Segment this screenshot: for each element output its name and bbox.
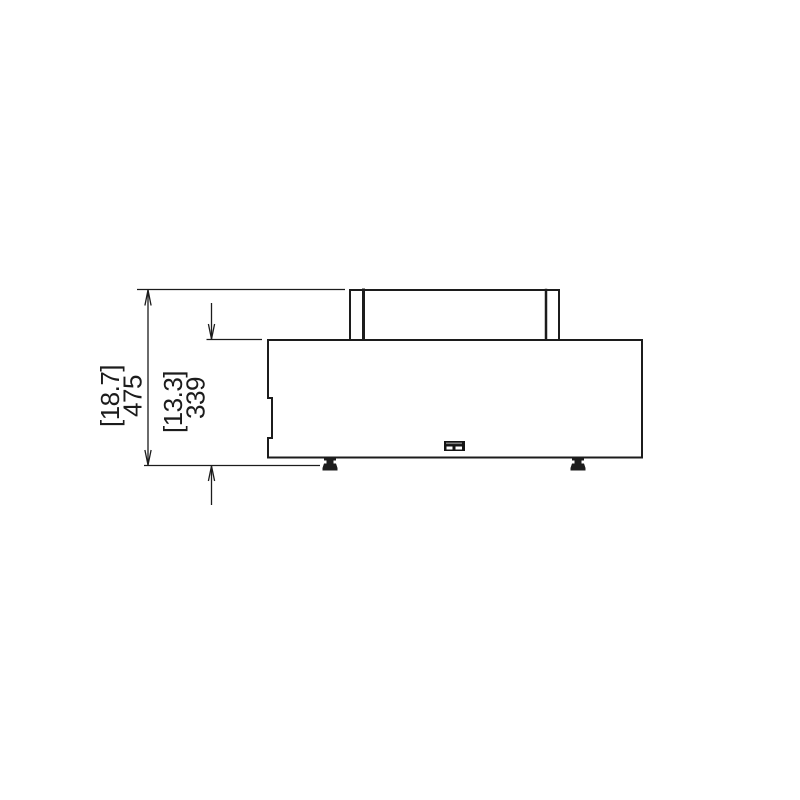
feet-group xyxy=(323,458,586,471)
left-leveling-foot xyxy=(323,458,338,471)
control-plate-right-slot xyxy=(456,447,463,450)
right-leveling-foot xyxy=(571,458,586,471)
body-height-mm-label: 339 xyxy=(181,377,211,419)
windscreen-outline xyxy=(350,290,559,339)
overall-height-mm-label: 475 xyxy=(118,375,148,417)
control-plate xyxy=(444,441,465,451)
drawing-page: [18.7] 475 [13.3] 339 xyxy=(0,0,800,800)
control-plate-vent-row xyxy=(446,443,462,445)
technical-drawing-canvas: [18.7] 475 [13.3] 339 xyxy=(0,0,800,800)
product-outline-group xyxy=(268,290,642,458)
cabinet-body-outline xyxy=(268,340,642,458)
control-plate-left-slot xyxy=(447,447,453,450)
